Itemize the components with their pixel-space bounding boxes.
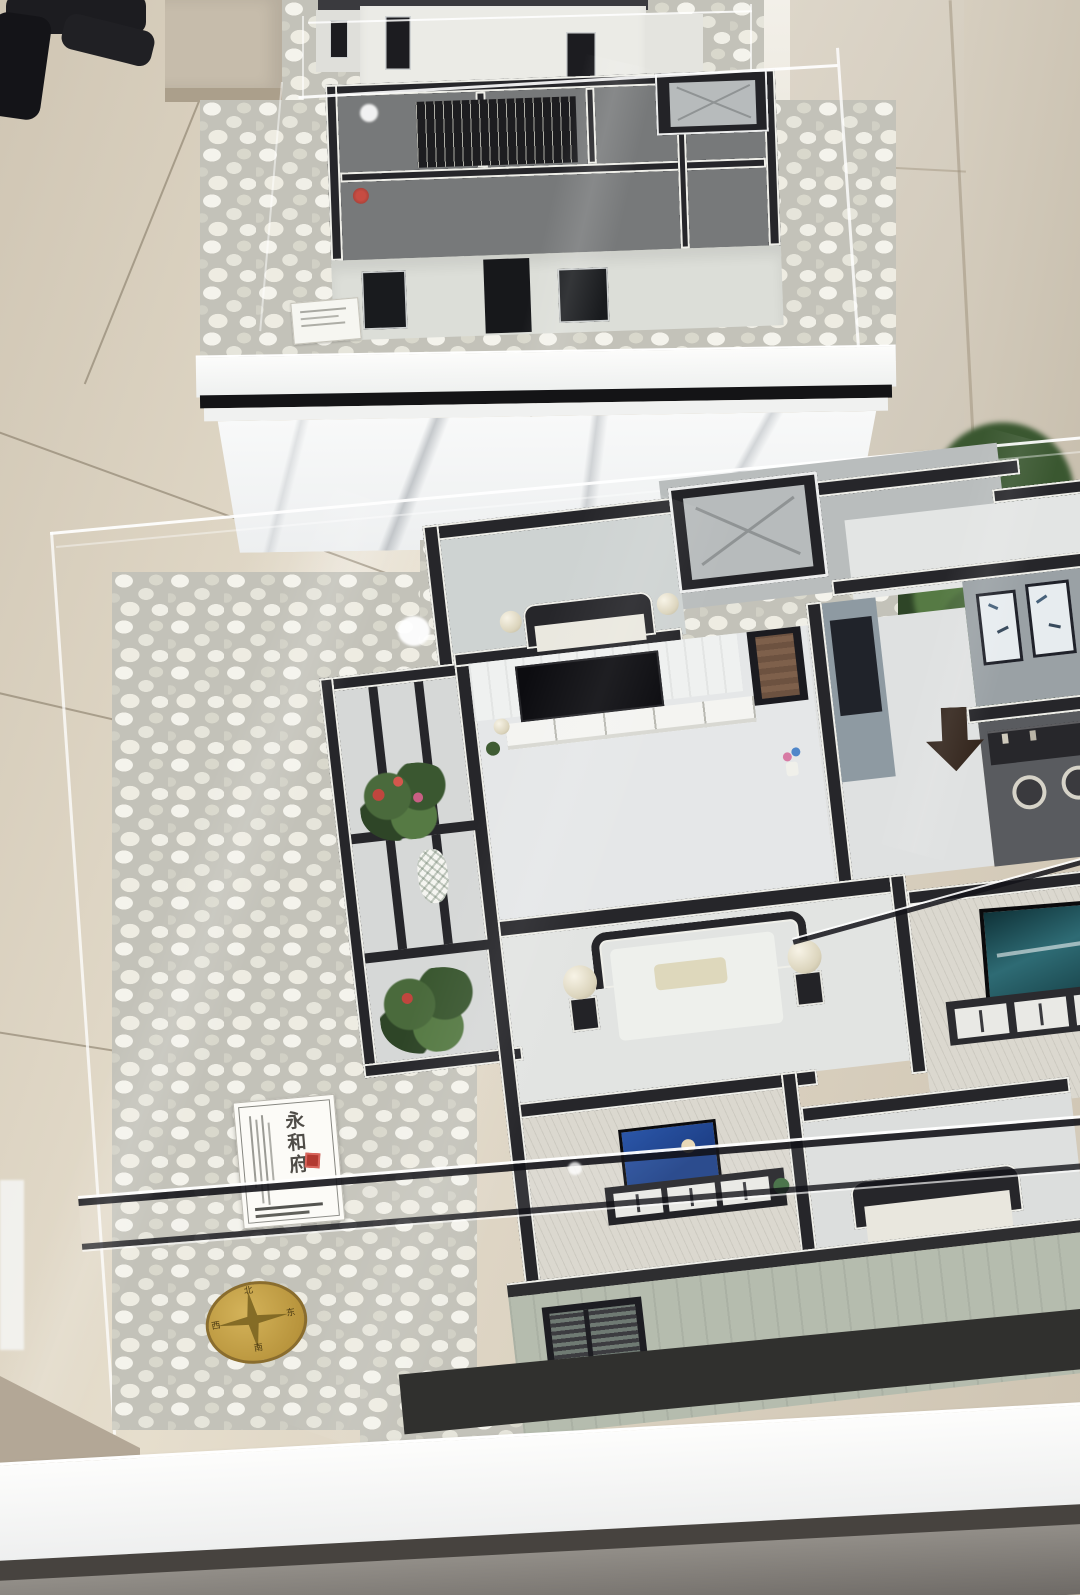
nightstand [793,970,825,1007]
sign-card-mid-line [301,321,345,327]
far-model-window [385,16,411,70]
sign-card-mid-line [300,307,346,313]
tv-wave-image [997,937,1080,957]
compass-south: 南 [253,1343,263,1353]
koi-fish [1036,594,1048,603]
sign-card-seal [305,1153,321,1169]
drawer-handle [1038,1003,1043,1025]
glass-left-sliver [0,1180,24,1350]
doorway-wood-floor [755,633,800,699]
bar-bottle [1002,733,1009,744]
sign-card-mid [290,297,361,345]
bar-bottle [1029,730,1036,741]
koi-fish [1049,623,1061,628]
console-drawer [954,1003,1009,1039]
light-dot-reflection [398,616,430,646]
pillar [165,0,285,102]
light-dot-reflection [360,104,378,122]
drawer-handle [979,1010,984,1032]
light-dot-reflection [568,1162,582,1175]
compass-north: 北 [243,1286,253,1296]
showroom-photo: 永和府 北 东 南 西 [0,0,1080,1595]
mid-front-window [362,270,408,330]
far-model-window [330,20,348,58]
flower-pot [785,761,799,776]
mid-bookshelf-wall [416,96,578,168]
sign-card-mid-line [301,315,339,320]
compass-east: 东 [286,1308,296,1318]
console-drawer [1014,996,1069,1032]
visitor-shoe [0,10,53,121]
koi-painting [1025,579,1077,658]
compass-west: 西 [211,1321,221,1331]
